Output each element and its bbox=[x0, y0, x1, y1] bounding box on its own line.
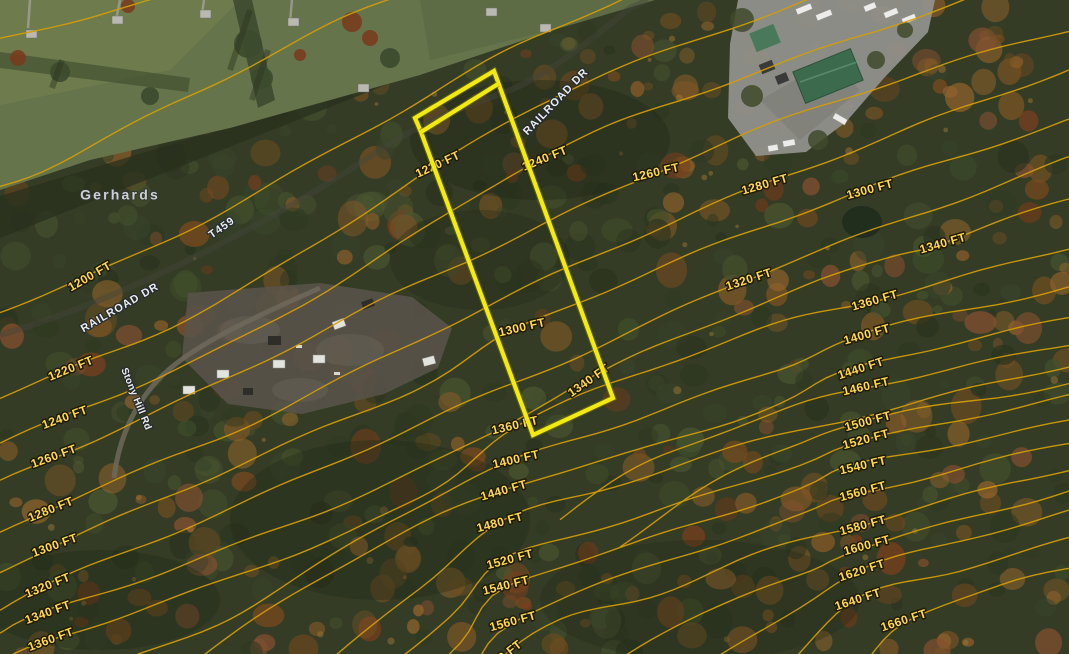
town-label: Gerhards bbox=[80, 187, 160, 203]
map-canvas[interactable]: 1200 FT1220 FT1220 FT1240 FT1240 FT1260 … bbox=[0, 0, 1069, 654]
house-roof bbox=[358, 84, 369, 92]
house-roof bbox=[288, 18, 299, 26]
house-roof bbox=[112, 16, 123, 24]
house-roof bbox=[273, 360, 285, 368]
house-roof bbox=[217, 370, 229, 378]
house-roof bbox=[313, 355, 325, 363]
house-roof bbox=[200, 10, 211, 18]
parcel-map-viewport[interactable]: 1200 FT1220 FT1220 FT1240 FT1240 FT1260 … bbox=[0, 0, 1069, 654]
house-roof bbox=[486, 8, 497, 16]
